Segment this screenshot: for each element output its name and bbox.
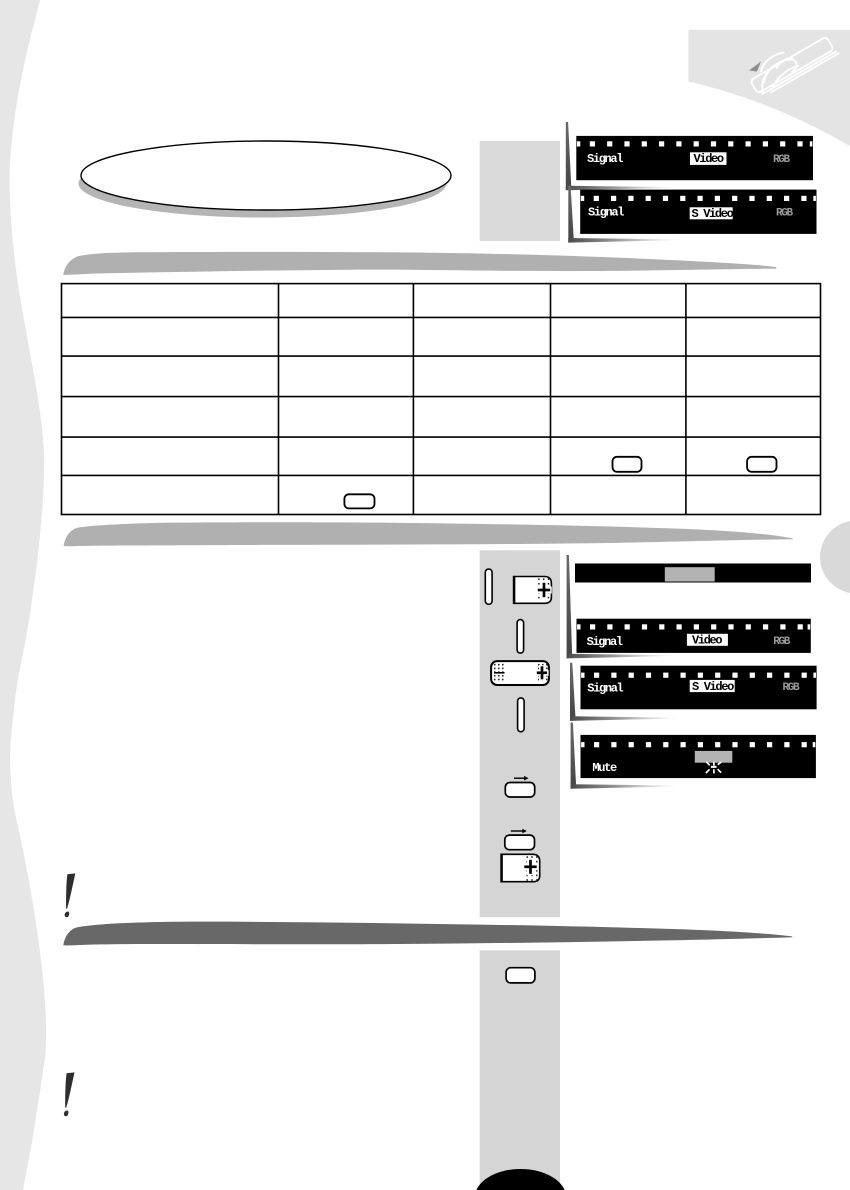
svg-text:Signal: Signal — [587, 682, 623, 696]
svg-text:S Video: S Video — [692, 207, 734, 221]
svg-text:RGB: RGB — [773, 636, 791, 648]
svg-text:Signal: Signal — [587, 152, 623, 166]
svg-text:S Video: S Video — [692, 680, 734, 694]
svg-text:Mute: Mute — [592, 761, 617, 775]
svg-text:RGB: RGB — [776, 208, 794, 220]
svg-text:RGB: RGB — [783, 682, 801, 694]
svg-text:Signal: Signal — [588, 206, 624, 220]
svg-text:RGB: RGB — [773, 154, 791, 166]
svg-text:Video: Video — [694, 152, 724, 166]
svg-text:Video: Video — [692, 634, 722, 648]
svg-text:Signal: Signal — [587, 635, 623, 649]
